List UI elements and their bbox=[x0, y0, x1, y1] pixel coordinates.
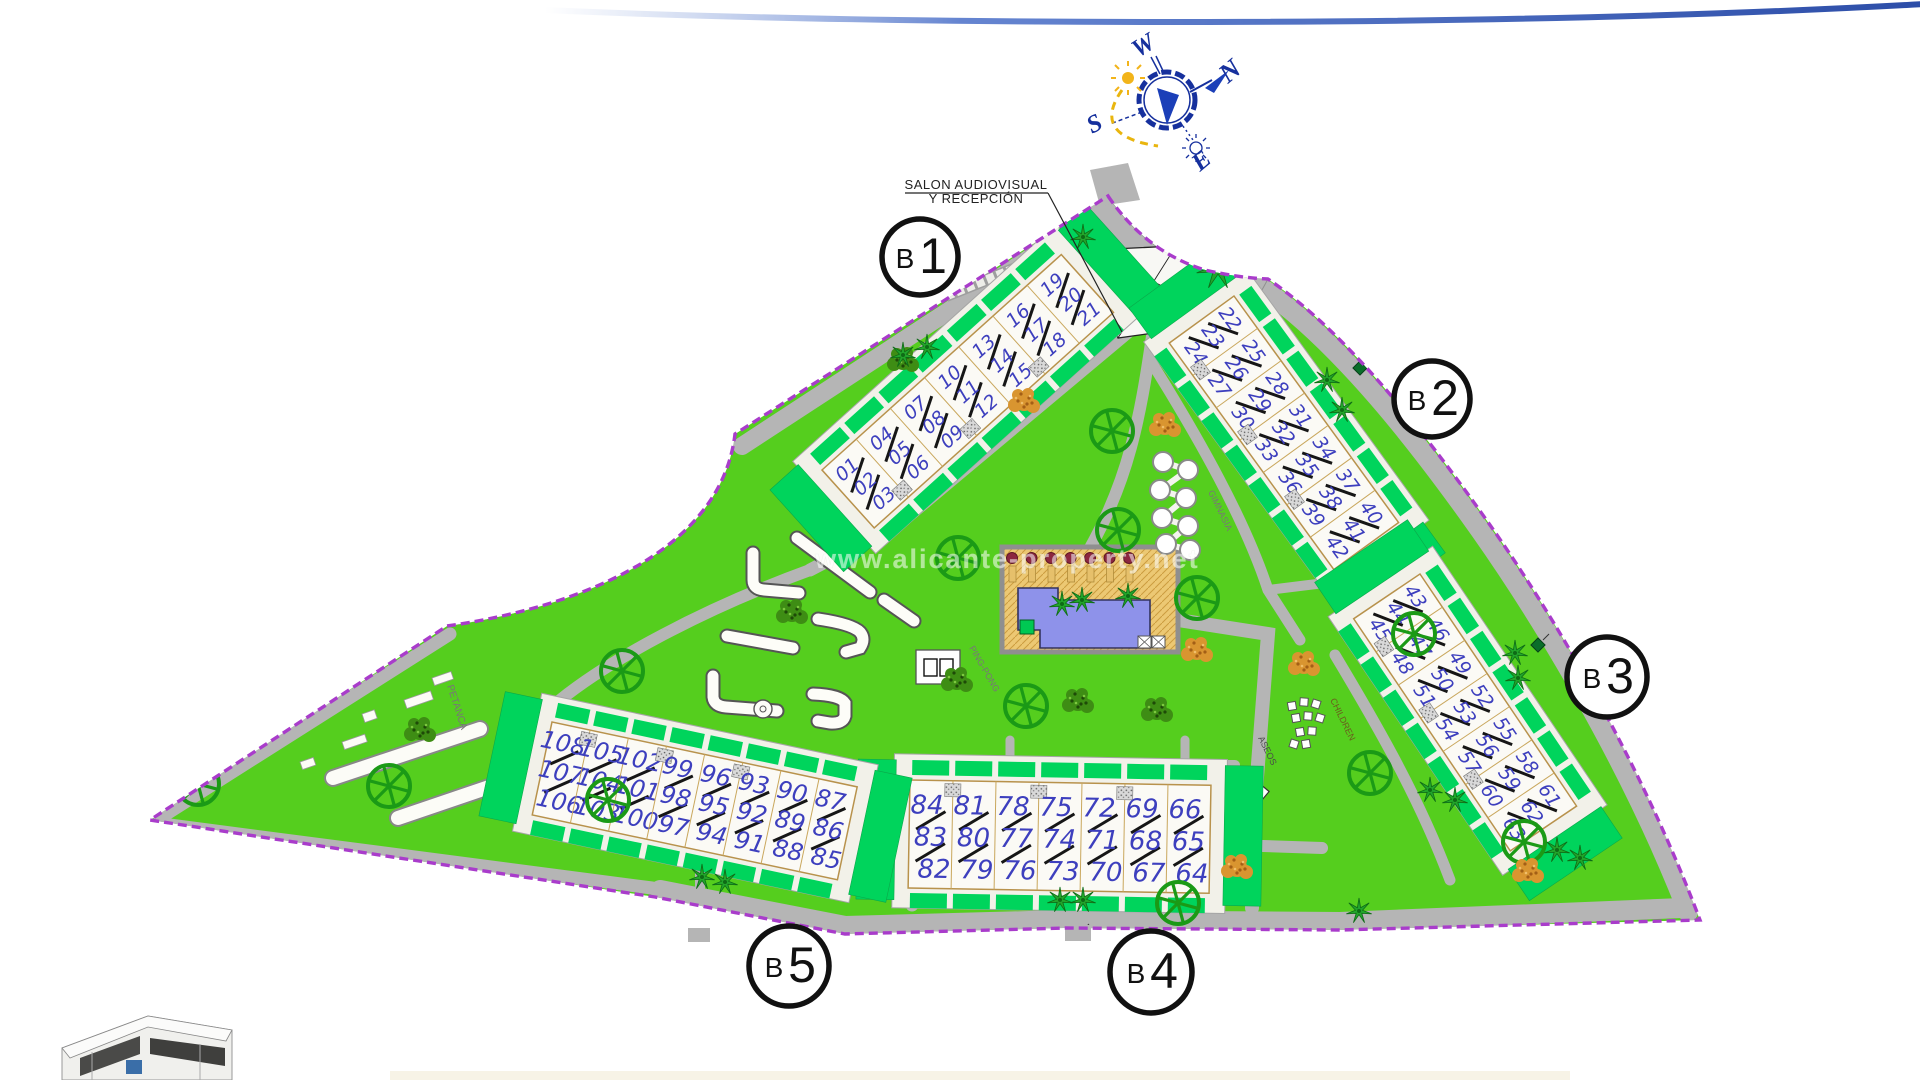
garden-strip bbox=[912, 760, 949, 776]
unit-number: 79 bbox=[960, 855, 994, 886]
unit-number: 70 bbox=[1089, 858, 1123, 889]
garden-strip bbox=[1170, 765, 1207, 781]
svg-text:2: 2 bbox=[1431, 370, 1459, 426]
block-label-B4: B4 bbox=[1110, 931, 1192, 1013]
block-label-B1: B1 bbox=[882, 219, 958, 295]
unit-number: 75 bbox=[1039, 793, 1073, 824]
unit-number: 83 bbox=[914, 822, 948, 853]
reception-label-line1: SALON AUDIOVISUAL bbox=[905, 177, 1048, 192]
svg-text:B: B bbox=[896, 243, 915, 274]
gym-station bbox=[1150, 480, 1170, 500]
svg-text:B: B bbox=[1127, 958, 1146, 989]
garden-strip bbox=[998, 762, 1035, 778]
unit-number: 73 bbox=[1046, 857, 1080, 888]
garden-strip bbox=[910, 893, 947, 909]
svg-text:5: 5 bbox=[788, 937, 816, 993]
svg-text:B: B bbox=[1408, 385, 1427, 416]
sun-icon bbox=[1111, 61, 1145, 95]
gym-station bbox=[1153, 452, 1173, 472]
garden-strip bbox=[1127, 764, 1164, 780]
compass-rose: W N S E bbox=[1082, 27, 1248, 177]
unit-number: 81 bbox=[953, 791, 987, 822]
gym-station bbox=[1178, 516, 1198, 536]
top-logo-arc bbox=[545, 4, 1920, 22]
corner-building-render bbox=[62, 1016, 232, 1080]
compass-south: S bbox=[1082, 109, 1107, 139]
unit-number: 71 bbox=[1086, 825, 1120, 856]
unit-number: 66 bbox=[1168, 795, 1202, 826]
block-label-B3: B3 bbox=[1567, 637, 1647, 717]
svg-text:B: B bbox=[765, 952, 784, 983]
planter bbox=[1020, 620, 1034, 634]
watermark: www.alicante-property.net bbox=[814, 544, 1200, 574]
unit-number: 74 bbox=[1043, 825, 1077, 856]
block-label-B5: B5 bbox=[749, 926, 829, 1006]
unit-number: 78 bbox=[996, 792, 1030, 823]
unit-number: 65 bbox=[1172, 827, 1206, 858]
garden-strip bbox=[1084, 763, 1121, 779]
unit-number: 67 bbox=[1132, 858, 1166, 889]
block-label-B2: B2 bbox=[1394, 361, 1470, 437]
gym-station bbox=[1176, 488, 1196, 508]
garden-strip bbox=[1041, 762, 1078, 778]
unit-number: 77 bbox=[1000, 824, 1034, 855]
garden-strip bbox=[996, 895, 1033, 911]
sun-path-arc bbox=[1112, 90, 1158, 146]
svg-text:1: 1 bbox=[919, 228, 947, 284]
gym-station bbox=[1178, 460, 1198, 480]
garden-patch bbox=[1223, 766, 1263, 907]
unit-number: 84 bbox=[910, 790, 944, 821]
unit-number: 69 bbox=[1125, 794, 1159, 825]
tree-icon bbox=[444, 536, 486, 578]
unit-number: 72 bbox=[1082, 793, 1116, 824]
unit-number: 68 bbox=[1129, 826, 1163, 857]
gym-station bbox=[1152, 508, 1172, 528]
garden-strip bbox=[953, 894, 990, 910]
site-plan-page: PING-PONGGIMNASIACHILDRENASEOSPETANCA 01… bbox=[0, 0, 1920, 1080]
garden-strip bbox=[955, 761, 992, 777]
site-plan: PING-PONGGIMNASIACHILDRENASEOSPETANCA 01… bbox=[0, 0, 1920, 1080]
svg-text:B: B bbox=[1583, 663, 1602, 694]
bottom-strip bbox=[390, 1071, 1570, 1080]
unit-number: 82 bbox=[917, 855, 951, 886]
svg-text:3: 3 bbox=[1606, 648, 1634, 704]
compass-needle bbox=[1157, 88, 1179, 125]
svg-text:4: 4 bbox=[1150, 943, 1178, 999]
unit-number: 76 bbox=[1003, 856, 1037, 887]
unit-number: 80 bbox=[957, 823, 991, 854]
